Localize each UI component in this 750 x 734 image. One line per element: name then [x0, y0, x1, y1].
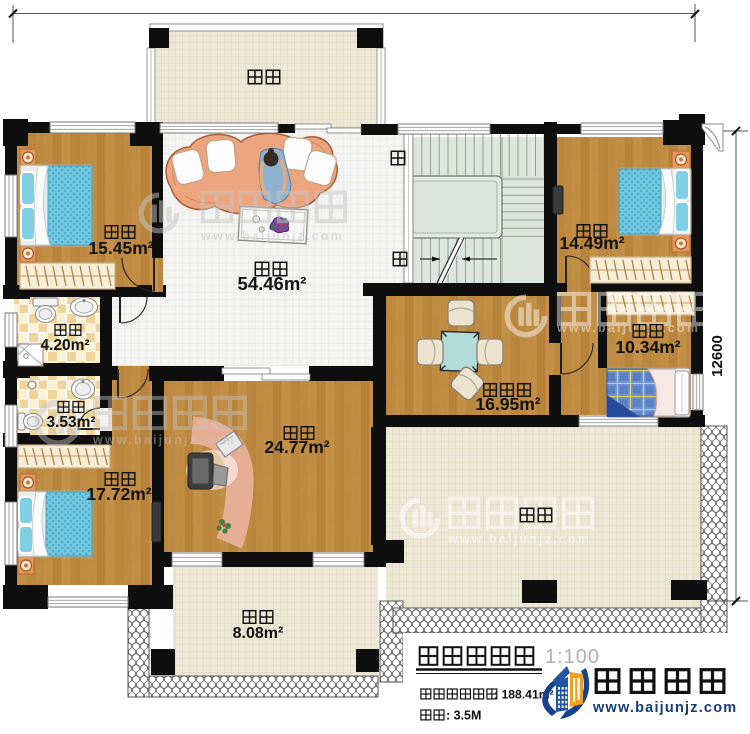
svg-text:1:100: 1:100	[545, 646, 600, 668]
svg-text:16.95m²: 16.95m²	[475, 394, 540, 414]
svg-text:17.72m²: 17.72m²	[86, 484, 151, 504]
svg-text:15.45m²: 15.45m²	[88, 238, 153, 258]
svg-text:3.53m²: 3.53m²	[46, 414, 95, 431]
svg-text:www.baijunjz.com: www.baijunjz.com	[92, 433, 236, 447]
svg-text:14.49m²: 14.49m²	[559, 233, 624, 253]
svg-text:4.20m²: 4.20m²	[40, 337, 89, 354]
svg-text:54.46m²: 54.46m²	[238, 273, 307, 294]
svg-text:: 3.5M: : 3.5M	[446, 709, 481, 723]
svg-text:www.baijunjz.com: www.baijunjz.com	[556, 321, 700, 335]
svg-text:8.08m²: 8.08m²	[233, 625, 284, 642]
svg-text:www.baijunjz.com: www.baijunjz.com	[447, 532, 591, 546]
svg-text:10.34m²: 10.34m²	[615, 337, 680, 357]
svg-text:24.77m²: 24.77m²	[264, 437, 329, 457]
svg-text:12600: 12600	[709, 335, 726, 377]
svg-text:www.baijunjz.com: www.baijunjz.com	[592, 700, 737, 716]
svg-text:www.baijunjz.com: www.baijunjz.com	[200, 229, 344, 243]
